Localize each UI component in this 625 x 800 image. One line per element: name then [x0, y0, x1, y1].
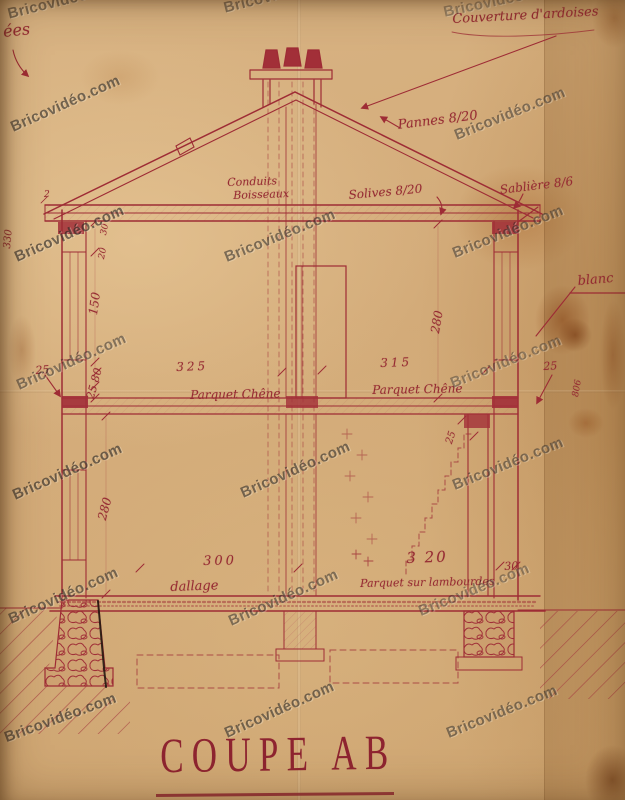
- ceiling-band: [45, 205, 540, 234]
- dim-330: 330: [2, 229, 15, 249]
- staircase: [342, 414, 490, 596]
- center-door: [296, 266, 346, 398]
- blueprint-paper: ées Couverture d'ardoises Pannes 8/20 Co…: [0, 0, 625, 800]
- floor-band: [62, 396, 518, 414]
- dim-315: 315: [380, 355, 412, 370]
- earth-hatch-right: [540, 611, 625, 699]
- label-parquet-chene-left: Parquet Chêne: [190, 386, 281, 402]
- dim-300: 300: [203, 553, 237, 569]
- arrow-top-left: [13, 50, 28, 76]
- drawing-title: COUPE AB: [160, 725, 397, 786]
- trench-dashed-outline: [137, 650, 458, 688]
- label-parquet-lambourdes: Parquet sur lambourdes: [360, 575, 495, 590]
- dim-325: 325: [176, 359, 208, 374]
- section-drawing: [0, 0, 625, 800]
- leader-couverture: [362, 36, 556, 108]
- label-dallage: dallage: [170, 578, 219, 595]
- center-pier: [276, 611, 324, 661]
- flue-dashes: [268, 82, 314, 594]
- right-pier: [456, 611, 522, 670]
- label-blanc: blanc: [577, 271, 614, 289]
- center-stack: [286, 104, 316, 596]
- label-ees: ées: [2, 19, 31, 41]
- chimney-pot: [305, 50, 322, 68]
- roof-opening: [176, 138, 194, 155]
- dim-2-eave: 2: [44, 190, 50, 200]
- dim-320: 3 20: [406, 548, 448, 567]
- dim-30-right: 30: [504, 559, 519, 573]
- label-parquet-chene-right: Parquet Chêne: [372, 381, 463, 397]
- dim-25-right: 25: [543, 359, 558, 373]
- underline-couverture: [452, 30, 594, 36]
- leader-blanc: [536, 287, 575, 336]
- arrow-25-left: [45, 375, 60, 396]
- stair-layout-marks: [342, 429, 377, 544]
- chimney-pot: [263, 50, 280, 68]
- chimney: [250, 48, 332, 107]
- chimney-pot: [284, 48, 301, 66]
- arrow-25-right: [537, 375, 552, 403]
- label-boisseaux: Boisseaux: [233, 187, 289, 202]
- dim-25-left: 25: [35, 363, 50, 377]
